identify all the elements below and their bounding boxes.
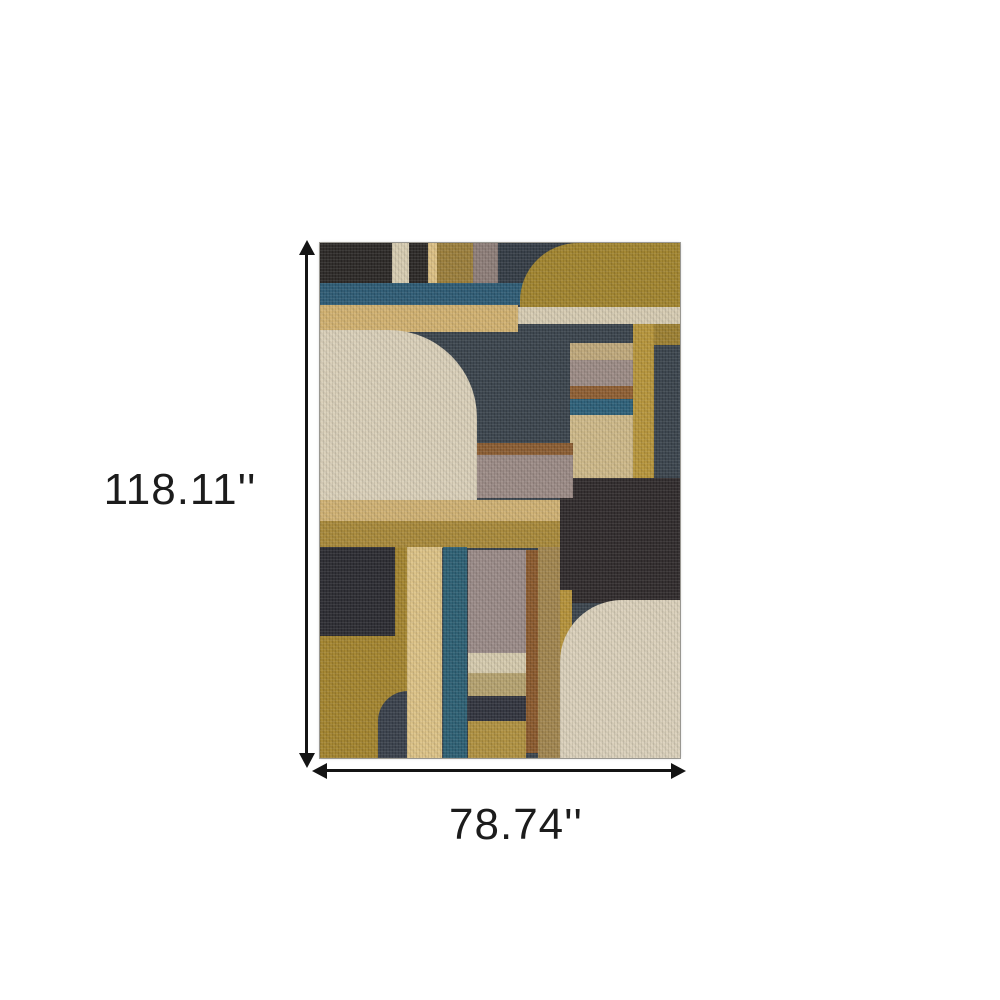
arrow-right-icon [671,763,686,779]
khaki-stripe-bottom [538,547,560,758]
arrow-line [322,769,676,772]
rug-image [320,243,680,758]
top-olive-block [437,243,473,285]
top-beige-stripe [392,243,409,285]
height-dimension-label: 118.11'' [70,465,290,515]
navy-band-bottom [468,696,526,721]
gold-rounded-top-right [520,243,680,309]
shelf-tan-band [320,500,560,521]
teal-stripe-vertical [443,547,467,758]
top-tan-stripe [428,243,437,285]
mid-teal-band [570,399,633,415]
tan-stripe-vertical [407,547,442,758]
teal-band-top [320,283,526,305]
width-dimension-label: 78.74'' [401,800,631,850]
width-dimension-arrow [312,763,686,779]
beige-rounded-left [320,330,477,500]
height-dimension-arrow [299,240,315,768]
mid-rust-band [570,386,633,399]
top-left-dark-block [320,243,428,285]
mid-mauve-band-wide [477,455,573,498]
mid-tan-band [570,343,633,360]
arrow-line [305,250,308,758]
beige-rounded-bottom-right [560,600,680,758]
navy-block-bottom-left [320,547,395,636]
beige-band-bottom [468,653,526,673]
gold-stripe-right [633,324,654,479]
shelf-gold-band [320,521,560,548]
mid-mauve-band [570,360,633,386]
gold-band-bottom [468,721,526,758]
dark-brown-region-right [560,478,680,603]
khaki-band-bottom [468,673,526,696]
beige-band-right [518,307,680,324]
gold-band [320,305,518,332]
top-mauve-block [473,243,498,285]
rust-stripe-bottom [526,550,538,753]
mauve-block-bottom [468,550,526,653]
mid-brown-band [477,443,573,455]
mid-khaki-block [570,415,633,479]
product-dimension-figure: 118.11'' 78.74'' [0,0,1000,1000]
